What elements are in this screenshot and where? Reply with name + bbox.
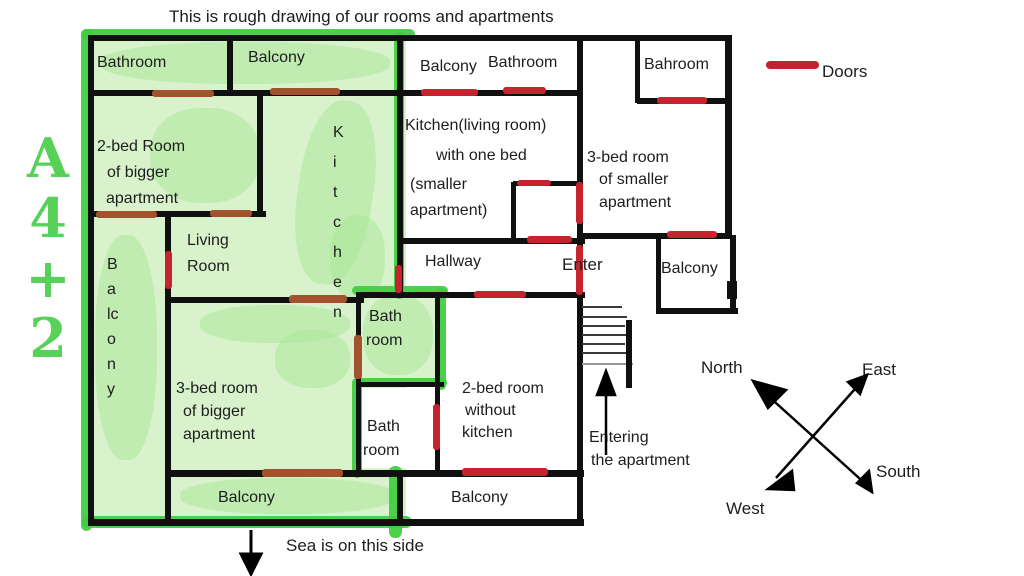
compass-north-label: North bbox=[701, 359, 743, 378]
stair-step bbox=[582, 343, 625, 345]
room-label-3bed-small-line3: apartment bbox=[599, 194, 671, 212]
stair-step bbox=[582, 352, 626, 354]
floor-plan-canvas: Doors This is rough drawing of our rooms… bbox=[0, 0, 1024, 576]
doors-legend-label: Doors bbox=[822, 63, 867, 82]
room-label-3bed-small-line2: of smaller bbox=[599, 171, 668, 189]
marker-blob bbox=[95, 235, 157, 460]
kitchen-letter: i bbox=[333, 148, 344, 178]
code-char: 2 bbox=[16, 308, 80, 368]
room-label-3bed-big-line1: 3-bed room bbox=[176, 380, 258, 398]
balcony-letter: lc bbox=[107, 302, 119, 327]
wall-bahroom-left bbox=[635, 35, 640, 103]
compass-line-sw-ne bbox=[776, 381, 862, 478]
door-marker bbox=[503, 87, 546, 94]
room-label-living-line2: Room bbox=[187, 258, 230, 276]
code-char: + bbox=[16, 248, 80, 308]
code-char: A bbox=[16, 128, 80, 188]
room-label-balcony-bottom-right: Balcony bbox=[451, 489, 508, 507]
door-marker bbox=[262, 469, 343, 477]
sea-note: Sea is on this side bbox=[286, 537, 424, 556]
wall-bathroom-balcony-divider bbox=[227, 35, 233, 95]
room-label-balcony-right: Balcony bbox=[661, 260, 718, 278]
sea-arrow-icon bbox=[241, 530, 261, 574]
kitchen-letter: h bbox=[333, 238, 344, 268]
room-label-living-line1: Living bbox=[187, 232, 229, 250]
room-label-3bed-small-line1: 3-bed room bbox=[587, 149, 669, 167]
room-label-kitchen-small-line2: with one bed bbox=[436, 147, 527, 165]
stair-step bbox=[582, 306, 622, 308]
room-label-bathroom-mid: Bathroom bbox=[488, 54, 557, 72]
kitchen-letter: n bbox=[333, 298, 344, 328]
room-label-2bed-small-line2: without bbox=[465, 402, 516, 420]
compass-east-label: East bbox=[862, 361, 896, 380]
code-char: 4 bbox=[16, 188, 80, 248]
door-marker bbox=[165, 251, 172, 289]
balcony-letter: y bbox=[107, 377, 119, 402]
wall-kitchen-right bbox=[397, 35, 403, 298]
room-label-bath-upper-line2: room bbox=[366, 332, 402, 350]
door-marker bbox=[527, 236, 572, 243]
kitchen-letter: e bbox=[333, 268, 344, 298]
wall-hallway-bottom bbox=[356, 292, 585, 298]
room-label-balcony-vertical: B a lc o n y bbox=[107, 252, 119, 402]
room-label-hallway: Hallway bbox=[425, 253, 481, 271]
compass-arrowhead-north bbox=[753, 381, 786, 408]
balcony-letter: B bbox=[107, 252, 119, 277]
door-marker bbox=[517, 180, 551, 186]
room-label-kitchen-small-line1: Kitchen(living room) bbox=[405, 117, 546, 135]
stair-step bbox=[582, 316, 627, 318]
compass-south-label: South bbox=[876, 463, 920, 482]
room-label-2bed-big-line1: 2-bed Room bbox=[97, 138, 185, 156]
compass-arrowhead-west bbox=[768, 471, 794, 490]
wall-left-outer bbox=[88, 35, 94, 525]
door-marker bbox=[210, 210, 252, 217]
kitchen-letter: K bbox=[333, 118, 344, 148]
kitchen-letter: c bbox=[333, 208, 344, 238]
wall-balcony-right-bottom bbox=[658, 308, 738, 314]
compass-line-nw-se bbox=[766, 394, 869, 487]
room-label-bath-lower-line2: room bbox=[363, 442, 399, 460]
marker-blob bbox=[180, 478, 395, 514]
stair-step bbox=[582, 325, 625, 327]
door-marker bbox=[462, 468, 548, 476]
door-marker bbox=[395, 265, 402, 293]
room-label-3bed-big-line2: of bigger bbox=[183, 403, 245, 421]
room-label-balcony-mid-top: Balcony bbox=[420, 58, 477, 76]
room-label-bathroom-big: Bathroom bbox=[97, 54, 166, 72]
wall-balcony-right-right bbox=[730, 235, 736, 314]
doors-legend-line bbox=[766, 61, 819, 69]
highlight-code: A 4 + 2 bbox=[16, 128, 80, 368]
door-marker bbox=[433, 404, 440, 450]
balcony-letter: a bbox=[107, 277, 119, 302]
balcony-letter: n bbox=[107, 352, 119, 377]
stair-rail bbox=[626, 320, 632, 388]
room-label-balcony-bottom-left: Balcony bbox=[218, 489, 275, 507]
room-label-2bed-big-line2: of bigger bbox=[107, 164, 169, 182]
door-marker bbox=[576, 182, 583, 224]
entering-arrowhead bbox=[597, 371, 615, 395]
room-label-bath-lower-line1: Bath bbox=[367, 418, 400, 436]
balcony-letter: o bbox=[107, 327, 119, 352]
door-marker bbox=[152, 90, 214, 97]
door-marker bbox=[421, 89, 478, 96]
entering-note-line1: Entering bbox=[589, 429, 649, 447]
room-label-bahroom-small: Bahroom bbox=[644, 56, 709, 74]
room-label-2bed-small-line1: 2-bed room bbox=[462, 380, 544, 398]
wall-bottom-balcony-divider bbox=[397, 474, 403, 524]
room-label-kitchen-vertical: K i t c h e n bbox=[333, 118, 344, 328]
wall-vestibule-left bbox=[511, 182, 516, 240]
kitchen-letter: t bbox=[333, 178, 344, 208]
room-label-3bed-big-line3: apartment bbox=[183, 426, 255, 444]
door-marker bbox=[270, 88, 340, 95]
wall-right-outer bbox=[725, 35, 732, 239]
marker-blob bbox=[275, 330, 350, 388]
wall-bottom-outer bbox=[88, 519, 584, 526]
door-marker bbox=[474, 291, 526, 298]
entering-note-line2: the apartment bbox=[591, 452, 690, 470]
compass-arrows-icon bbox=[753, 375, 872, 492]
door-marker bbox=[354, 335, 362, 379]
sea-arrowhead bbox=[241, 554, 261, 574]
room-label-balcony-big-top: Balcony bbox=[248, 49, 305, 67]
room-label-2bed-big-line3: apartment bbox=[106, 190, 178, 208]
wall-balcony-right-bump bbox=[727, 281, 737, 299]
door-marker bbox=[657, 97, 707, 104]
stair-step bbox=[582, 334, 626, 336]
enter-label: Enter bbox=[562, 256, 603, 275]
compass-west-label: West bbox=[726, 500, 764, 519]
room-label-bath-upper-line1: Bath bbox=[369, 308, 402, 326]
room-label-kitchen-small-line3: (smaller bbox=[410, 176, 467, 194]
door-marker bbox=[667, 231, 717, 238]
compass-arrowhead-south bbox=[857, 471, 872, 492]
wall-bath-middle bbox=[356, 382, 444, 387]
door-marker bbox=[96, 211, 157, 218]
page-title: This is rough drawing of our rooms and a… bbox=[169, 8, 554, 27]
room-label-kitchen-small-line4: apartment) bbox=[410, 202, 487, 220]
room-label-2bed-small-line3: kitchen bbox=[462, 424, 513, 442]
wall-2bed-kitchen-divider bbox=[257, 91, 263, 215]
